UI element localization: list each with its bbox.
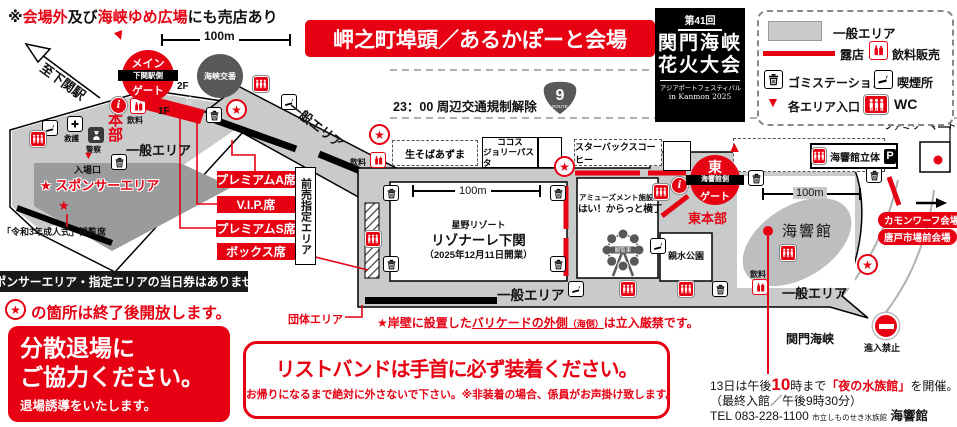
resort-open-date: （2025年12月11日開業） [390,247,567,261]
trash-icon [383,185,399,201]
east-hq-label: 東本部 [688,208,727,227]
outside-shops-note: ※会場外及び海峡ゆめ広場にも売店あり [8,6,278,27]
aq-event: 「夜の水族館」 [826,379,910,393]
note-suffix: にも売店あり [188,9,278,26]
main-gate-badge: メイン 下関駅側 ゲート [122,50,174,102]
venue-title: 岬之町埠頭／あるかぽーと会場 [305,20,655,57]
scale-label-top: 100m [200,29,239,43]
parking-sign: 海響館立体 P [810,143,898,169]
trash-icon [764,70,783,89]
wc-icon [678,281,694,297]
seat-premium-s: プレミアムS席 [216,220,296,237]
legend-drink-label: 飲料販売 [892,46,940,63]
barricade-underlined: バリケードの外側 [472,316,568,330]
main-gate-line2: 下関駅側 [118,70,178,81]
open-after-star-marker: ★ [5,299,26,320]
traffic-note: 23：00 周辺交通規制解除 [393,96,537,115]
aq-name: 海響館 [890,409,928,423]
route9-number: 9 [556,87,565,104]
seat-vip: V.I.P.席 [217,196,295,213]
kamon-wharf-tag: カモンワーフ会場 [878,212,957,228]
police-icon [88,127,104,143]
wristband-main: リストバンドは手首に必ず装着ください。 [246,353,667,382]
entrance-triangle-icon: ▲ [727,140,742,155]
reiwa-star-icon: ★ [58,198,70,214]
general-area-label-south: 一般エリア [497,284,565,304]
group-area-label: 団体エリア [288,311,343,327]
open-after-star-marker: ★ [857,254,878,275]
info-icon: i [110,97,127,114]
no-entry-label: 進入禁止 [864,341,900,354]
smoking-icon [568,281,584,297]
legend-wc-label: WC [894,96,917,112]
route9-word: ROUTE [552,104,568,109]
wc-icon [365,231,381,247]
legend-stall-swatch [763,51,835,56]
legend-entrance-label: 各エリア入口 [788,98,860,115]
trash-icon [383,256,399,272]
aquarium-info: 13日は午後10時まで「夜の水族館」を開催。 （最終入館／午後9時30分） TE… [710,377,957,425]
dispersal-line1: 分散退場に [20,334,230,363]
east-gate-line1: 東 [690,157,740,177]
legend-trash-label: ゴミステーション [788,74,884,91]
trash-icon [748,170,764,186]
right-arrow [936,198,947,208]
aq-org: 市立しものせき水族館 [812,413,887,422]
first-aid-label: 救護 [64,133,79,144]
barricade-note: ★岸壁に設置したバリケードの外側（海側）は立入厳禁です。 [377,314,699,331]
no-entry-icon [873,313,899,339]
legend-general-label: 一般エリア [833,23,896,42]
aq-mid: 時まで [790,379,826,393]
amusement-name-label: はい！からっと横丁 [578,201,658,215]
dispersal-sub: 退場誘導をいたします。 [20,395,230,414]
trash-icon [206,107,222,123]
drink-icon [370,152,386,168]
main-gate-line1: メイン [122,55,174,71]
parking-name: 海響館立体 [830,149,880,164]
logo-main2: 花火大会 [655,55,745,77]
trash-icon [866,167,882,183]
smoking-icon [874,70,893,89]
barricade-pre: ★岸壁に設置した [377,316,472,330]
wristband-sub: お帰りになるまで絶対に外さないで下さい。※非装着の場合、係員がお声掛け致します。 [246,386,667,402]
drink-label: 飲料 [350,157,366,168]
karato-market-tag: 唐戸市場前会場 [878,229,957,245]
advance-area-label: 前売指定エリア [295,167,316,265]
drink-icon [752,279,768,295]
general-area-label-west: 一般エリア [126,140,191,159]
trash-icon [111,154,127,170]
wc-icon [30,131,46,147]
note-red2: 海峡ゆめ広場 [98,9,188,26]
trash-icon [550,256,566,272]
note-red1: 会場外 [23,9,68,26]
note-prefix: ※ [8,9,23,26]
open-after-star-marker: ★ [554,156,575,177]
ferris-wheel-icon: 観覧車 [597,226,649,280]
barricade-suf: は立入厳禁です。 [604,316,699,330]
floor-2f-label: 2F [177,81,189,92]
aq-suf: を開催。 [910,379,957,393]
wc-icon [620,281,636,297]
wc-icon [253,76,269,92]
wc-icon [653,184,669,200]
logo-edition: 第41回 [678,8,721,31]
scale-label-resort: 100m [455,185,491,197]
logo-sub2: in Kanmon 2025 [655,92,745,101]
entrance-triangle-icon: ▼ [83,151,94,162]
legend-stall-label: 露店 [840,46,864,63]
wc-icon [864,95,888,114]
aquarium-dot [763,226,773,236]
ferris-wheel-label: 観覧車 [615,246,632,254]
floor-1f-label: 1F [158,106,170,117]
seat-premium-a: プレミアムA席 [217,171,295,188]
aquarium-info-line2: （最終入館／午後9時30分） [710,394,957,409]
entrance-triangle-icon: ▼ [766,95,780,109]
trash-icon [712,281,728,297]
legend-smoking-label: 喫煙所 [897,74,933,91]
note-mid: 及び [68,9,98,26]
dispersal-notice-box: 分散退場に ご協力ください。 退場誘導をいたします。 [8,326,230,422]
shop-soba: 生そばあずま [392,140,478,166]
wc-icon [812,148,826,164]
group-area-bar [365,297,497,304]
venue-map-page: ※会場外及び海峡ゆめ広場にも売店あり 100m 岬之町埠頭／あるかぽーと会場 第… [0,0,957,427]
drink-label: 飲料 [127,115,143,126]
strait-label: 関門海峡 [786,330,834,347]
open-after-star-marker: ★ [369,124,390,145]
logo-sub1: アジアポートフェスティバル [660,80,740,92]
wc-icon [780,245,796,261]
no-entry-bar [879,324,894,329]
drink-icon [869,41,888,60]
shop-cocos-label: ココス [497,137,523,147]
east-gate-line3: ゲート [690,188,740,203]
parking-p-icon: P [884,149,896,164]
sponsor-area-label: ★ スポンサーエリア [40,175,159,194]
star-open-note: の箇所は終了後開放します。 [31,301,231,323]
open-after-star-marker: ★ [226,99,247,120]
barricade-small: （海側） [568,319,604,329]
aq-pre: 13日は午後 [710,379,771,393]
legend-general-swatch [768,21,822,41]
aquarium-info-line1: 13日は午後10時まで「夜の水族館」を開催。 [710,377,957,394]
logo-main1: 関門海峡 [655,33,745,55]
shop-cocos-jolly: ココス ジョリーパスタ [482,137,538,168]
east-gate-line2: 海響館側 [686,175,744,185]
route9-badge: 9 ROUTE [540,78,580,118]
hq-label: 本部 [104,112,125,150]
wristband-notice-box: リストバンドは手首に必ず装着ください。 お帰りになるまで絶対に外さないで下さい。… [243,341,670,419]
main-gate-line3: ゲート [122,83,174,98]
building-box [663,141,691,171]
east-gate-badge: 東 海響館側 ゲート [690,155,740,205]
general-area-label-east: 一般エリア [782,283,847,302]
police-box-circle: 海峡交番 [197,54,243,98]
dispersal-line2: ご協力ください。 [20,363,230,392]
shop-starbucks: スターバックスコーヒー [574,139,662,166]
seat-box: ボックス席 [217,243,295,260]
no-sameday-ticket-bar: スポンサーエリア・指定エリアの当日券はありません [0,271,248,292]
event-logo: 第41回 関門海峡 花火大会 アジアポートフェスティバル in Kanmon 2… [655,8,745,122]
scale-label-east: 100m [793,187,827,199]
trash-icon [550,185,566,201]
park-label: 親水公園 [660,249,712,262]
aquarium-label: 海響館 [782,220,833,241]
resort-name2: リゾナーレ下関 [390,229,567,249]
aq-time: 10 [771,375,790,394]
aq-tel: TEL 083-228-1100 [710,409,809,423]
reiwa-seats-label: 「令和3年成人式」観覧席 [2,225,106,238]
shop-jolly-label: ジョリーパスタ [483,147,537,167]
first-aid-icon [67,116,83,132]
aquarium-info-line3: TEL 083-228-1100 市立しものせき水族館 海響館 [710,409,957,425]
